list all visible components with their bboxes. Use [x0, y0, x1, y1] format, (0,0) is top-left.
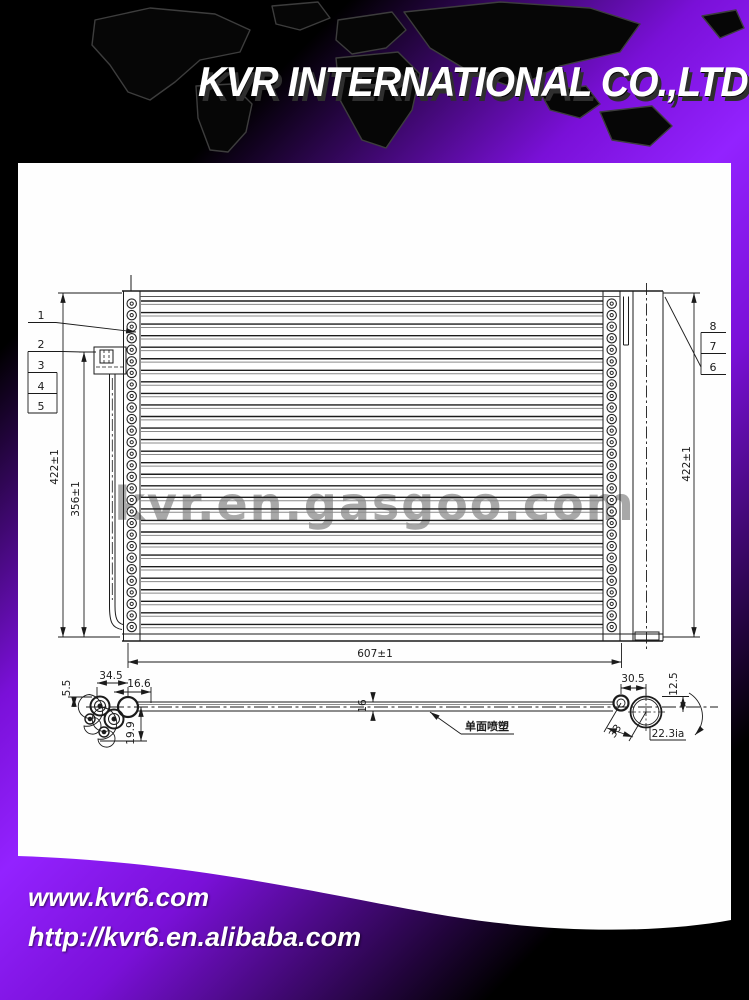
website-url[interactable]: www.kvr6.com [28, 882, 209, 913]
dim-drier-dia: 22.3ia [652, 728, 685, 740]
callout-7: 7 [710, 340, 717, 353]
dim-height-left: 422±1 [49, 449, 61, 485]
dim-port-inset: 16.6 [127, 678, 151, 690]
dim-port-drop: 19.9 [125, 721, 137, 744]
product-image: KVR INTERNATIONAL CO.,LTD kvr.en.gasgoo.… [0, 0, 749, 1000]
dim-width: 607±1 [357, 648, 393, 660]
callout-4: 4 [38, 380, 45, 393]
callout-2: 2 [38, 338, 45, 351]
callout-8: 8 [710, 320, 717, 333]
dim-height-core: 356±1 [70, 481, 82, 517]
dim-drier-drop: 12.5 [668, 672, 680, 695]
callout-1: 1 [38, 309, 45, 322]
callout-6: 6 [710, 361, 717, 374]
technical-drawing: kvr.en.gasgoo.com [0, 0, 749, 1000]
dim-port-offset: 5.5 [61, 680, 73, 697]
dim-bar-thickness: 16 [357, 699, 369, 713]
white-sheet [18, 163, 731, 930]
callout-5: 5 [38, 400, 45, 413]
dim-drier-offset: 30.5 [621, 673, 644, 685]
coating-note: 单面喷塑 [465, 719, 509, 733]
callout-3: 3 [38, 359, 45, 372]
dim-port-span: 34.5 [99, 670, 122, 682]
alibaba-url[interactable]: http://kvr6.en.alibaba.com [28, 922, 361, 953]
drawing-panel: kvr.en.gasgoo.com [0, 0, 749, 1000]
dim-height-right: 422±1 [681, 446, 693, 482]
